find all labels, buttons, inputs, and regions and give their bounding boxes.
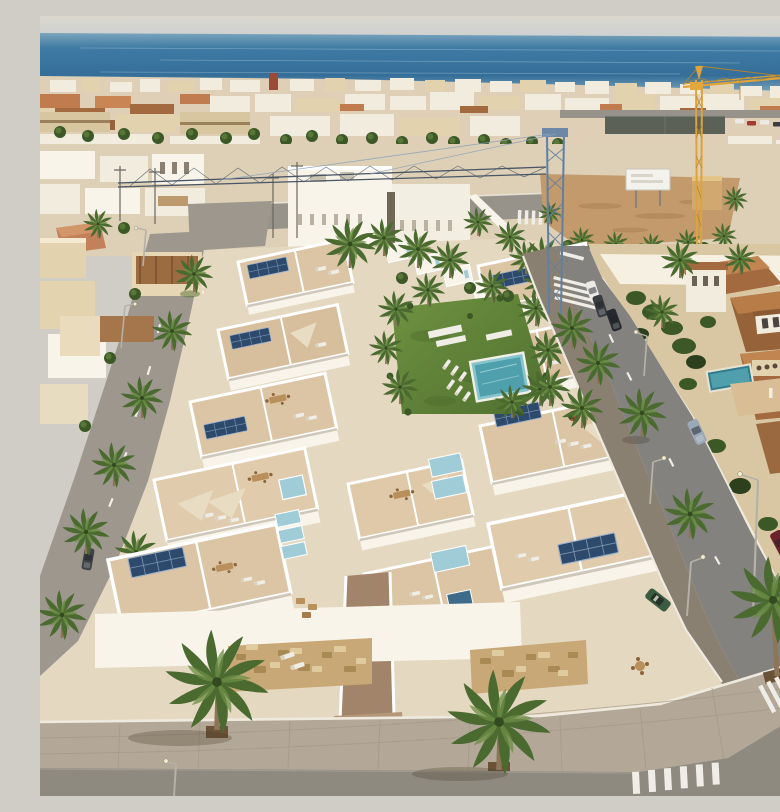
red-car-far xyxy=(747,121,756,126)
glass-balustrade xyxy=(279,475,307,500)
swimming-pool xyxy=(470,353,530,402)
crane-operator-cab xyxy=(690,82,703,90)
crane-cab xyxy=(542,128,568,137)
statue xyxy=(769,388,773,398)
sports-court xyxy=(605,116,725,134)
intersection xyxy=(188,201,272,251)
aerial-photo-canvas: Aerial rendering of a new beachside resi… xyxy=(40,16,780,796)
aerial-development-photo: Aerial rendering of a new beachside resi… xyxy=(40,16,780,796)
